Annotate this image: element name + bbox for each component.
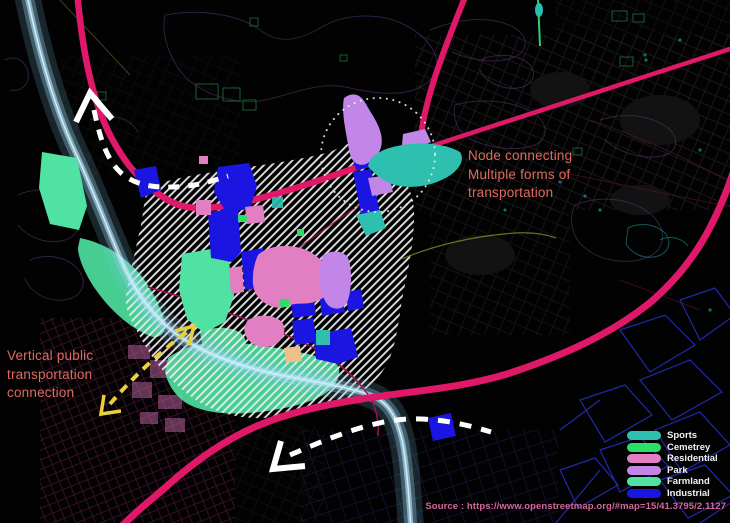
legend-label-residential: Residential	[667, 454, 718, 463]
legend-swatch-industrial	[627, 489, 661, 498]
legend-item-park: Park	[627, 466, 718, 475]
legend-swatch-cemetery	[627, 443, 661, 452]
hill-contours	[626, 225, 688, 258]
legend-item-industrial: Industrial	[627, 489, 718, 498]
legend-label-sports: Sports	[667, 431, 697, 440]
legend-item-farmland: Farmland	[627, 477, 718, 486]
map-canvas: Node connecting Multiple forms of transp…	[0, 0, 730, 523]
legend-item-residential: Residential	[627, 454, 718, 463]
legend-item-sports: Sports	[627, 431, 718, 440]
annotation-vertical-label: Vertical public transportation connectio…	[7, 347, 93, 403]
legend-swatch-residential	[627, 454, 661, 463]
legend: Sports Cemetrey Residential Park Farmlan…	[627, 431, 718, 498]
map-graphic	[0, 0, 730, 523]
legend-swatch-park	[627, 466, 661, 475]
legend-label-cemetery: Cemetrey	[667, 443, 710, 452]
legend-label-industrial: Industrial	[667, 489, 710, 498]
legend-swatch-sports	[627, 431, 661, 440]
legend-label-park: Park	[667, 466, 688, 475]
beige-zone	[284, 346, 302, 363]
legend-item-cemetery: Cemetrey	[627, 443, 718, 452]
annotation-node-label: Node connecting Multiple forms of transp…	[468, 147, 572, 203]
map-source-attribution: Source : https://www.openstreetmap.org/#…	[425, 501, 726, 512]
legend-swatch-farmland	[627, 477, 661, 486]
legend-label-farmland: Farmland	[667, 477, 710, 486]
